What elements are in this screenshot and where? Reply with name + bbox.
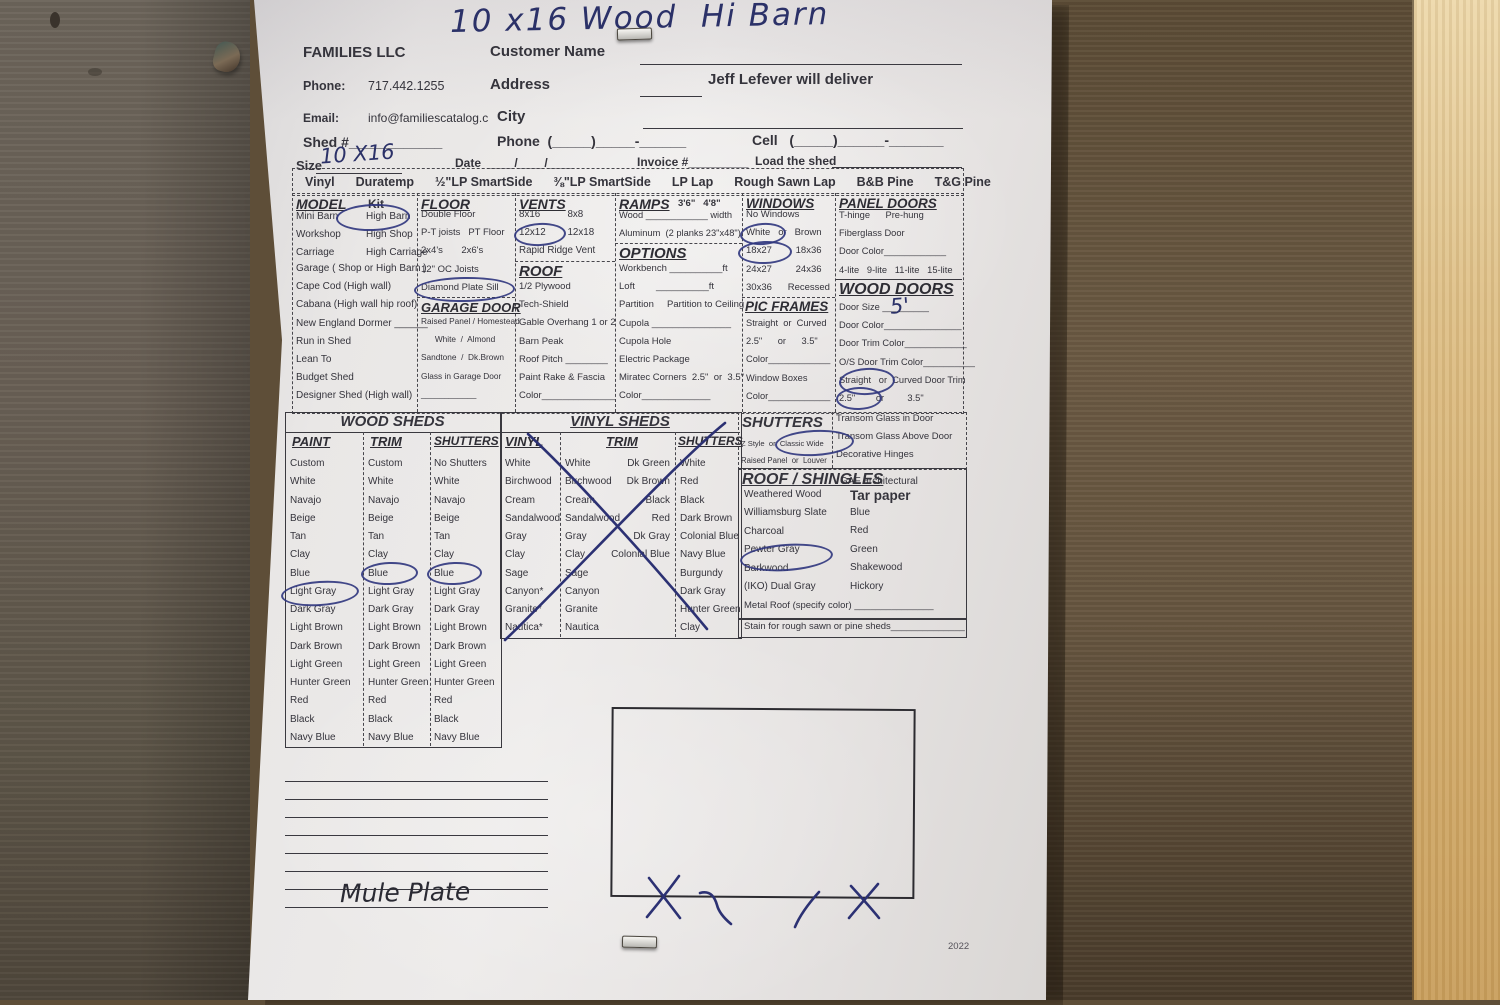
- vinyl-color: Sandalwood: [505, 510, 560, 528]
- vinyl-trim-color: Colonial Blue: [580, 546, 670, 564]
- siding-option: Duratemp: [356, 173, 414, 191]
- wall-left: [0, 0, 250, 1000]
- vinyl-trim-color: Sage: [565, 565, 620, 583]
- paint-color: Custom: [290, 455, 351, 473]
- paint-color: Tan: [290, 528, 351, 546]
- vinyl-color: Nautica*: [505, 619, 560, 637]
- vinyl-color: Birchwood: [505, 473, 560, 491]
- trim-color: Black: [368, 711, 429, 729]
- wood-sheds-title-rule: [285, 432, 500, 433]
- column-divider: [515, 261, 615, 262]
- vinyl-shutter-color: White: [680, 455, 741, 473]
- roof-option: Gable Overhang 1 or 2: [519, 314, 616, 332]
- vinyl-col-header: VINYL: [505, 434, 543, 449]
- vinyl-color: Canyon*: [505, 583, 560, 601]
- vinyl-trim2-colors-list: Dk GreenDk BrownBlackRedDk GrayColonial …: [580, 455, 670, 565]
- trim-color: White: [368, 473, 429, 491]
- trim-color: Navajo: [368, 492, 429, 510]
- panel-doors-option: 4-lite 9-lite 11-lite 15-lite: [839, 261, 953, 279]
- transom-option: Decorative Hinges: [836, 446, 952, 464]
- vinyl-trim-color: Red: [580, 510, 670, 528]
- shingle-color: Red: [850, 522, 902, 540]
- shingle-color: (IKO) Dual Gray: [744, 578, 827, 596]
- vinyl-color: Cream: [505, 492, 560, 510]
- vinyl-trim-col-header: TRIM: [606, 434, 638, 449]
- vinyl-trim-color: Dk Brown: [580, 473, 670, 491]
- garage-door-option: ____________: [421, 385, 520, 403]
- roof-option: Paint Rake & Fascia: [519, 369, 616, 387]
- shutter-color: Navy Blue: [434, 729, 495, 747]
- option-item: Workbench __________ft: [619, 260, 744, 278]
- note-line: [285, 799, 548, 800]
- model-option: Cabana (High wall hip roof): [296, 296, 428, 314]
- option-item: Color_____________: [619, 387, 744, 405]
- paint-color: Black: [290, 711, 351, 729]
- cell-field: Cell (_____)______-_______: [752, 133, 943, 148]
- wood-sheds-title: WOOD SHEDS: [285, 414, 500, 431]
- trim-color: Dark Brown: [368, 638, 429, 656]
- pic-frames-header: PIC FRAMES: [745, 299, 828, 314]
- shutters-col-header: SHUTTERS: [434, 434, 499, 448]
- paint-color: Red: [290, 692, 351, 710]
- model-option: Lean To: [296, 351, 428, 369]
- model-option: Designer Shed (High wall): [296, 387, 428, 405]
- garage-door-option: White / Almond: [421, 330, 520, 348]
- tar-paper-label: Tar paper: [850, 489, 911, 504]
- vinyl-shutter-color: Burgundy: [680, 565, 741, 583]
- vinyl-sheds-divider: [675, 432, 676, 637]
- load-the-shed-label: Load the shed: [755, 155, 836, 168]
- option-item: Cupola _______________: [619, 315, 744, 333]
- shed-sketch-rectangle: [610, 707, 915, 899]
- siding-option: ⅜"LP SmartSide: [553, 173, 650, 191]
- vinyl-shutters-col-header: SHUTTERS: [678, 434, 743, 448]
- roof-option: Color______________: [519, 387, 616, 405]
- wall-right: [1030, 0, 1422, 1000]
- trim-color: Light Brown: [368, 619, 429, 637]
- email-label: Email:: [303, 112, 339, 125]
- pic-frames-option: Window Boxes: [746, 369, 830, 387]
- vinyl-sheds-divider: [560, 432, 561, 637]
- vinyl-trim-color: Nautica: [565, 619, 620, 637]
- stain-row: Stain for rough sawn or pine sheds______…: [744, 622, 965, 632]
- model-option: Cape Cod (High wall): [296, 278, 428, 296]
- shutter-color: Dark Brown: [434, 638, 495, 656]
- model-option: Budget Shed: [296, 369, 428, 387]
- vinyl-sheds-title-rule: [500, 432, 740, 433]
- note-line: [285, 817, 548, 818]
- paint-color: White: [290, 473, 351, 491]
- options-list: Workbench __________ftLoft __________ftP…: [619, 260, 744, 406]
- company-name: FAMILIES LLC: [303, 45, 406, 62]
- vinyl-color: White: [505, 455, 560, 473]
- trim-color: Light Green: [368, 656, 429, 674]
- vinyl-shutter-color: Black: [680, 492, 741, 510]
- paint-col-header: PAINT: [292, 434, 330, 449]
- note-line: [285, 907, 548, 908]
- staple-top: [617, 27, 652, 40]
- panel-doors-option: T-hinge Pre-hung: [839, 206, 953, 224]
- siding-options-strip: VinylDuratemp½"LP SmartSide⅜"LP SmartSid…: [292, 168, 964, 196]
- trim-color: Tan: [368, 528, 429, 546]
- floor-option: Double Floor: [421, 206, 505, 224]
- phone-label: Phone:: [303, 80, 345, 94]
- shingle-color: Weathered Wood: [744, 486, 827, 504]
- trim-color: Custom: [368, 455, 429, 473]
- note-line: [285, 835, 548, 836]
- shingle-color: Williamsburg Slate: [744, 504, 827, 522]
- wood-doors-option: Door Color_______________: [839, 316, 975, 334]
- pic-frames-option: 2.5" or 3.5": [746, 332, 830, 350]
- vinyl-shutter-color: Red: [680, 473, 741, 491]
- column-divider: [615, 243, 742, 244]
- siding-option: Vinyl: [305, 173, 335, 191]
- paint-color: Hunter Green: [290, 674, 351, 692]
- vinyl-shutter-color: Hunter Green: [680, 601, 741, 619]
- vinyl-trim-color: Black: [580, 492, 670, 510]
- model-option: Carriage: [296, 247, 366, 258]
- shingle-colors-left-list: Weathered WoodWilliamsburg SlateCharcoal…: [744, 486, 827, 596]
- floor-option: 2x4's 2x6's: [421, 242, 505, 260]
- ramps-option: Wood ____________ width: [619, 206, 741, 224]
- gaf-architectural-label: GAF architectural: [840, 476, 918, 487]
- panel-doors-option: Fiberglass Door: [839, 224, 953, 242]
- option-item: Cupola Hole: [619, 333, 744, 351]
- panel-doors-option: Door Color____________: [839, 242, 953, 260]
- paint-color: Beige: [290, 510, 351, 528]
- shutter-color: White: [434, 473, 495, 491]
- deliver-note: Jeff Lefever will deliver: [708, 72, 873, 89]
- paint-color: Navy Blue: [290, 729, 351, 747]
- option-item: Loft __________ft: [619, 278, 744, 296]
- wood-doors-option: Door Trim Color____________: [839, 334, 975, 352]
- ramps-option: Aluminum (2 planks 23"x48"): [619, 224, 741, 242]
- address-line: [640, 96, 702, 97]
- wall-mark: [88, 68, 102, 76]
- wood-sheds-divider: [430, 432, 431, 746]
- roof-options-list: 1/2 PlywoodTech-ShieldGable Overhang 1 o…: [519, 278, 616, 405]
- wood-doors-separator: [835, 279, 962, 280]
- siding-option: T&G Pine: [935, 173, 991, 191]
- vents-option: 8x16 8x8: [519, 206, 595, 224]
- shutter-color: No Shutters: [434, 455, 495, 473]
- shutter-color: Black: [434, 711, 495, 729]
- paint-color: Clay: [290, 546, 351, 564]
- shingle-color: Blue: [850, 504, 902, 522]
- siding-option: Rough Sawn Lap: [734, 173, 835, 191]
- trim-colors-list: CustomWhiteNavajoBeigeTanClayBlueLight G…: [368, 455, 429, 747]
- model-header: MODEL: [296, 196, 347, 212]
- shingle-color: Green: [850, 541, 902, 559]
- vinyl-sheds-title: VINYL SHEDS: [500, 414, 740, 431]
- model-options-list: Garage ( Shop or High Barn )Cape Cod (Hi…: [296, 260, 428, 406]
- option-item: Partition Partition to Ceiling: [619, 296, 744, 314]
- transom-option: Transom Glass in Door: [836, 410, 952, 428]
- shutters-header: SHUTTERS: [742, 415, 823, 432]
- wood-sheds-divider: [363, 432, 364, 746]
- shutter-color: Beige: [434, 510, 495, 528]
- trim-color: Light Gray: [368, 583, 429, 601]
- vinyl-shutter-color: Navy Blue: [680, 546, 741, 564]
- shutter-color: Tan: [434, 528, 495, 546]
- city-label: City: [497, 109, 525, 126]
- phone-value: 717.442.1255: [368, 80, 444, 94]
- trim-color: Red: [368, 692, 429, 710]
- address-label: Address: [490, 77, 550, 94]
- transom-option: Transom Glass Above Door: [836, 428, 952, 446]
- garage-door-option: Sandtone / Dk.Brown: [421, 348, 520, 366]
- shutter-color: Hunter Green: [434, 674, 495, 692]
- siding-option: LP Lap: [672, 173, 713, 191]
- model-option: Run in Shed: [296, 333, 428, 351]
- pic-frames-option: Straight or Curved: [746, 314, 830, 332]
- note-line: [285, 871, 548, 872]
- customer-name-label: Customer Name: [490, 44, 605, 61]
- size-value-handwritten: 10 X16: [319, 139, 395, 168]
- paint-color: Light Brown: [290, 619, 351, 637]
- mule-plate-handwritten: Mule Plate: [340, 877, 471, 908]
- door-size-handwritten: 5': [889, 293, 910, 319]
- email-value: info@familiescatalog.c: [368, 112, 488, 125]
- windows-option: No Windows: [746, 206, 830, 224]
- roof-option: Roof Pitch ________: [519, 351, 616, 369]
- trim-color: Dark Gray: [368, 601, 429, 619]
- model-option: Workshop: [296, 229, 366, 240]
- siding-option: B&B Pine: [857, 173, 914, 191]
- vinyl-trim-color: Dk Green: [580, 455, 670, 473]
- vinyl-trim-color: Dk Gray: [580, 528, 670, 546]
- shingle-color: Hickory: [850, 578, 902, 596]
- trim-color: Beige: [368, 510, 429, 528]
- siding-options-list: VinylDuratemp½"LP SmartSide⅜"LP SmartSid…: [305, 173, 991, 191]
- trim-col-header: TRIM: [370, 434, 402, 449]
- vinyl-color: Gray: [505, 528, 560, 546]
- shingle-color: Shakewood: [850, 559, 902, 577]
- vinyl-shutter-color: Clay: [680, 619, 741, 637]
- garage-door-option: Raised Panel / Homestead: [421, 312, 520, 330]
- windows-option: 30x36 Recessed: [746, 279, 830, 297]
- roof-option: Tech-Shield: [519, 296, 616, 314]
- order-form-paper: 10 x16 Wood Hi Barn FAMILIES LLC Custome…: [228, 0, 1058, 1000]
- note-line: [285, 853, 548, 854]
- ramps-options-list: Wood ____________ widthAluminum (2 plank…: [619, 206, 741, 242]
- vinyl-shutter-color: Dark Brown: [680, 510, 741, 528]
- vinyl-color: Granite*: [505, 601, 560, 619]
- floor-option: P-T joists PT Floor: [421, 224, 505, 242]
- transom-options-list: Transom Glass in DoorTransom Glass Above…: [836, 410, 952, 465]
- column-divider: [742, 297, 835, 298]
- shutter-panel-row: Raised Panel or Louver: [741, 457, 827, 466]
- model-option: High Carriage: [366, 247, 428, 258]
- pic-frames-option: Color____________: [746, 350, 830, 368]
- staple-bottom: [622, 936, 657, 949]
- roof-option: 1/2 Plywood: [519, 278, 616, 296]
- wood-trim-strip: [1412, 0, 1500, 1000]
- shingle-colors-right-list: BlueRedGreenShakewoodHickory: [850, 504, 902, 596]
- garage-door-option: Glass in Garage Door: [421, 367, 520, 385]
- shutters-colors-list: No ShuttersWhiteNavajoBeigeTanClayBlueLi…: [434, 455, 495, 747]
- city-line: [643, 128, 963, 129]
- option-item: Miratec Corners 2.5" or 3.5": [619, 369, 744, 387]
- shutter-color: Navajo: [434, 492, 495, 510]
- shutter-color: Dark Gray: [434, 601, 495, 619]
- vinyl-color: Sage: [505, 565, 560, 583]
- siding-option: ½"LP SmartSide: [435, 173, 532, 191]
- vinyl-shutter-color: Colonial Blue: [680, 528, 741, 546]
- paint-color: Light Green: [290, 656, 351, 674]
- pic-frames-option: Color____________: [746, 387, 830, 405]
- note-line: [285, 781, 548, 782]
- shingle-color: Charcoal: [744, 523, 827, 541]
- paint-color: Dark Brown: [290, 638, 351, 656]
- shutter-color: Light Green: [434, 656, 495, 674]
- model-option: New England Dormer ______: [296, 315, 428, 333]
- garage-door-options-list: Raised Panel / Homestead White / AlmondS…: [421, 312, 520, 403]
- vinyl-color: Clay: [505, 546, 560, 564]
- form-year: 2022: [948, 942, 969, 952]
- trim-color: Hunter Green: [368, 674, 429, 692]
- vinyl-colors-list: WhiteBirchwoodCreamSandalwoodGrayClaySag…: [505, 455, 560, 638]
- roof-option: Barn Peak: [519, 333, 616, 351]
- shutter-color: Red: [434, 692, 495, 710]
- model-option: Garage ( Shop or High Barn ): [296, 260, 428, 278]
- panel-doors-options-list: T-hinge Pre-hungFiberglass DoorDoor Colo…: [839, 206, 953, 279]
- customer-name-line: [640, 64, 962, 65]
- vinyl-shutter-colors-list: WhiteRedBlackDark BrownColonial BlueNavy…: [680, 455, 741, 638]
- pic-frames-options-list: Straight or Curved2.5" or 3.5"Color_____…: [746, 314, 830, 405]
- phone-field: Phone (_____)_____-______: [497, 134, 686, 149]
- metal-roof-row: Metal Roof (specify color) _____________…: [744, 601, 934, 611]
- paint-color: Navajo: [290, 492, 351, 510]
- shutter-color: Light Gray: [434, 583, 495, 601]
- option-item: Electric Package: [619, 351, 744, 369]
- shutter-color: Light Brown: [434, 619, 495, 637]
- trim-color: Navy Blue: [368, 729, 429, 747]
- vinyl-shutter-color: Dark Gray: [680, 583, 741, 601]
- vinyl-trim-color: Granite: [565, 601, 620, 619]
- grid-divider: [835, 193, 836, 412]
- wall-mark: [50, 12, 60, 28]
- vinyl-trim-color: Canyon: [565, 583, 620, 601]
